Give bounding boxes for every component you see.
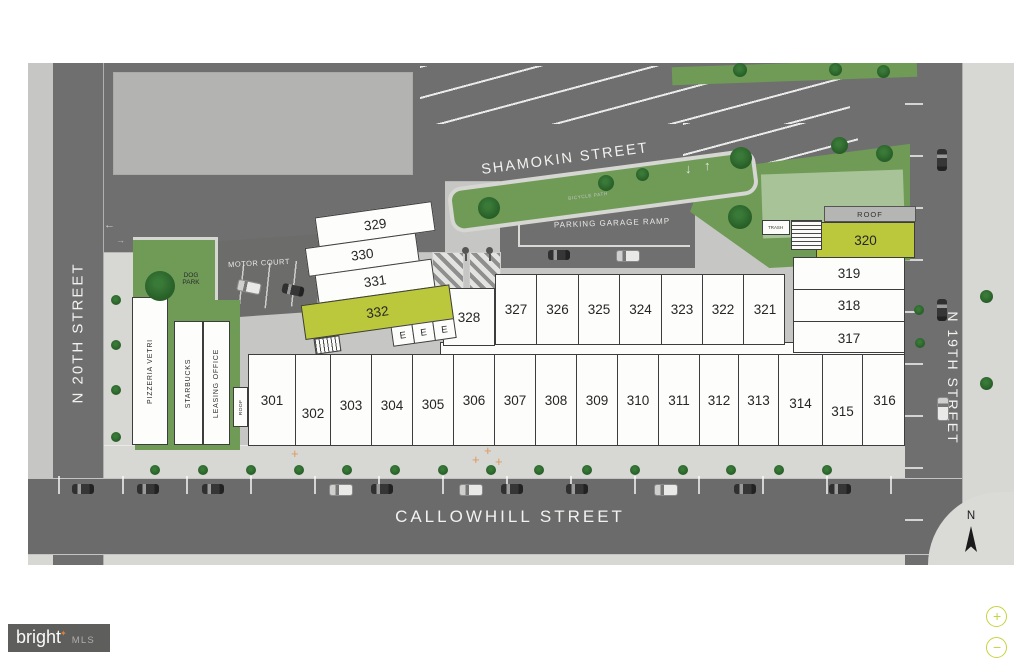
parked-car: [654, 484, 678, 496]
tree: [876, 145, 893, 162]
unit-326: 326: [537, 275, 579, 344]
parked-car: [937, 397, 949, 421]
tree: [829, 63, 842, 76]
building-bottom-row: 301 302 303 304 305 306 307 308 309 310 …: [248, 354, 905, 446]
unit-316: 316: [863, 355, 906, 445]
traffic-arrow-up: ↑: [704, 158, 711, 173]
site-plan: N 301 302 303 304 305 306 307 308 309 31…: [28, 63, 1014, 565]
tree: [598, 175, 614, 191]
unit-309: 309: [577, 355, 618, 445]
tree: [831, 137, 848, 154]
parked-car: [202, 484, 224, 494]
tree: [438, 465, 448, 475]
roof-lower-box: ROOF: [233, 387, 248, 427]
building-leasing-office: LEASING OFFICE: [203, 321, 230, 445]
unit-308: 308: [536, 355, 577, 445]
tree: [774, 465, 784, 475]
zoom-out-button[interactable]: −: [986, 637, 1007, 658]
tree: [534, 465, 544, 475]
tree: [150, 465, 160, 475]
unit-315: 315: [823, 355, 863, 445]
callowhill-stalls: [58, 476, 938, 494]
unit-301: 301: [249, 355, 296, 445]
zoom-in-button[interactable]: +: [986, 606, 1007, 627]
building-middle-row: 327 326 325 324 323 322 321: [495, 274, 785, 345]
parked-car: [937, 149, 947, 171]
adjacent-building-footprint: [113, 72, 413, 175]
elevator-unit: E: [432, 318, 457, 341]
brightmls-watermark: bright ✦ MLS: [8, 624, 110, 652]
tree: [980, 290, 993, 303]
tree: [198, 465, 208, 475]
tree: [246, 465, 256, 475]
parked-car: [566, 484, 588, 494]
stairs-icon: [313, 335, 341, 354]
tree: [877, 65, 890, 78]
roof-bar: ROOF: [824, 206, 916, 222]
survey-marker: +: [472, 452, 480, 467]
compass: N: [958, 506, 984, 558]
tree: [294, 465, 304, 475]
unit-325: 325: [579, 275, 620, 344]
tree: [636, 168, 649, 181]
tree: [730, 147, 752, 169]
unit-306: 306: [454, 355, 495, 445]
compass-n-label: N: [967, 510, 975, 522]
unit-312: 312: [700, 355, 739, 445]
north-arrow-icon: [961, 525, 981, 555]
tree: [478, 197, 500, 219]
survey-marker: +: [291, 446, 299, 461]
parking-sign-icon: [486, 247, 493, 261]
unit-305: 305: [413, 355, 454, 445]
unit-323: 323: [662, 275, 703, 344]
tree: [111, 340, 121, 350]
parked-car: [137, 484, 159, 494]
tree: [111, 385, 121, 395]
unit-317: 317: [794, 322, 904, 354]
unit-313: 313: [739, 355, 779, 445]
tree: [733, 63, 747, 77]
unit-310: 310: [618, 355, 659, 445]
traffic-arrow-down: ↓: [685, 161, 692, 176]
traffic-arrow-left: ←: [104, 219, 115, 231]
parked-car: [548, 250, 570, 260]
unit-321: 321: [744, 275, 786, 344]
building-pizzeria-vetri: PIZZERIA VETRI: [132, 297, 168, 445]
dog-park-label: DOG PARK: [182, 272, 199, 286]
unit-304: 304: [372, 355, 413, 445]
callowhill-street-label: CALLOWHILL STREET: [395, 507, 625, 527]
parked-car: [72, 484, 94, 494]
unit-327: 327: [496, 275, 537, 344]
parked-car: [371, 484, 393, 494]
roof-upper-label: ROOF: [857, 210, 883, 219]
parked-car: [616, 250, 640, 262]
unit-302: 302: [296, 355, 331, 445]
tree: [111, 432, 121, 442]
tree: [678, 465, 688, 475]
parked-car: [501, 484, 523, 494]
tree: [145, 271, 175, 301]
unit-307: 307: [495, 355, 536, 445]
n19th-street-label: N 19TH STREET: [945, 311, 961, 444]
building-angled-block: 329 330 331 332 E E E: [289, 200, 457, 361]
traffic-arrow-right: →: [116, 235, 125, 245]
survey-marker: +: [495, 454, 503, 469]
tree: [728, 205, 752, 229]
tree: [390, 465, 400, 475]
unit-320: 320: [816, 222, 915, 258]
unit-314: 314: [779, 355, 823, 445]
tree: [342, 465, 352, 475]
starbucks-label: STARBUCKS: [185, 358, 192, 407]
building-starbucks: STARBUCKS: [174, 321, 203, 445]
tree: [486, 465, 496, 475]
tree: [630, 465, 640, 475]
tree: [582, 465, 592, 475]
tree: [914, 305, 924, 315]
n20th-street-label: N 20TH STREET: [70, 262, 87, 403]
tree: [726, 465, 736, 475]
brightmls-suffix: MLS: [72, 635, 95, 646]
pizzeria-vetri-label: PIZZERIA VETRI: [147, 339, 154, 404]
trash-room: TRASH: [762, 220, 790, 235]
tree: [111, 295, 121, 305]
parked-car: [329, 484, 353, 496]
unit-322: 322: [703, 275, 744, 344]
brightmls-star-icon: ✦: [60, 629, 67, 638]
tree: [822, 465, 832, 475]
unit-303: 303: [331, 355, 372, 445]
building-right-column: 319 318 317: [793, 257, 905, 353]
tree: [980, 377, 993, 390]
brightmls-brand: bright: [16, 624, 61, 650]
sidewalk-right: [962, 63, 1014, 565]
survey-marker: +: [484, 443, 492, 458]
unit-318: 318: [794, 290, 904, 322]
leasing-office-label: LEASING OFFICE: [213, 348, 220, 417]
stairs-icon: [791, 220, 822, 250]
unit-324: 324: [620, 275, 662, 344]
roof-lower-label: ROOF: [238, 399, 244, 415]
tree: [915, 338, 925, 348]
unit-311: 311: [659, 355, 700, 445]
parked-car: [829, 484, 851, 494]
parked-car: [459, 484, 483, 496]
parked-car: [937, 299, 947, 321]
unit-319: 319: [794, 258, 904, 290]
trash-label: TRASH: [769, 225, 784, 230]
parked-car: [734, 484, 756, 494]
parking-sign-icon: [462, 247, 469, 261]
